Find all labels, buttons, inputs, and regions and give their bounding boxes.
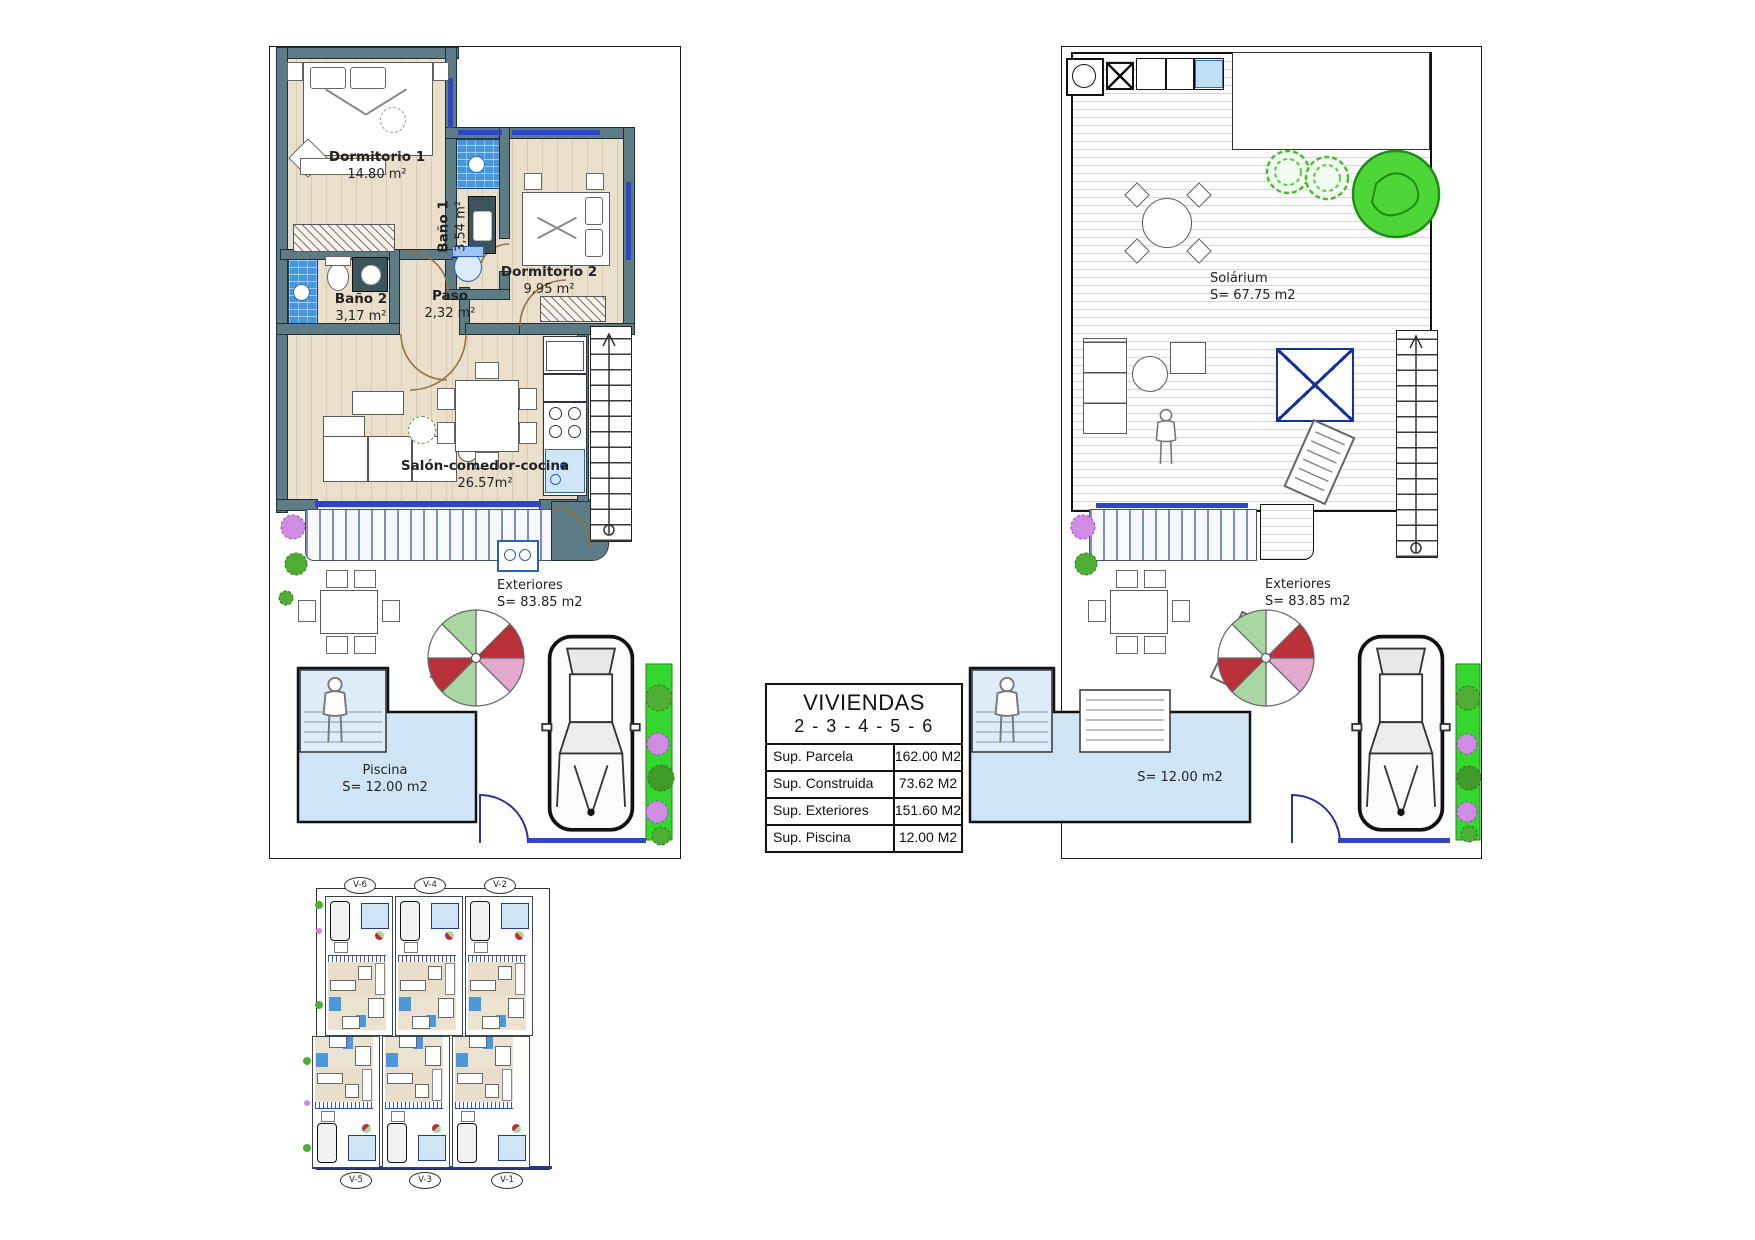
- mini-living-room: [398, 962, 456, 996]
- mini-bathroom: [456, 1053, 468, 1067]
- bush-icon: [303, 1057, 311, 1065]
- mini-dining: [498, 966, 512, 980]
- mini-bed: [412, 1016, 430, 1029]
- site-plan: V-6V-4V-2V-5V-3V-1: [0, 0, 1755, 1240]
- mini-sofa: [317, 1073, 343, 1084]
- mini-bed: [469, 1036, 487, 1048]
- bush-icon: [304, 1100, 310, 1106]
- mini-bed: [508, 998, 524, 1018]
- mini-pool: [498, 1135, 526, 1161]
- mini-car-icon: [317, 1123, 337, 1163]
- mini-living-room: [468, 962, 526, 996]
- mini-bed: [342, 1016, 360, 1029]
- bush-icon: [303, 1144, 311, 1152]
- site-unit: [452, 1036, 530, 1168]
- mini-bed: [368, 998, 384, 1018]
- mini-sofa: [457, 1073, 483, 1084]
- mini-sofa: [387, 1073, 413, 1084]
- mini-car-icon: [400, 901, 420, 941]
- mini-sofa: [470, 980, 496, 991]
- mini-table: [321, 1111, 335, 1122]
- site-unit: [465, 896, 533, 1036]
- unit-label: V-5: [340, 1172, 372, 1189]
- mini-living-room: [315, 1068, 373, 1102]
- mini-bed: [482, 1016, 500, 1029]
- mini-dining: [358, 966, 372, 980]
- mini-umbrella-icon: [362, 1124, 371, 1133]
- mini-table: [404, 942, 418, 953]
- mini-table: [474, 942, 488, 953]
- mini-dining: [415, 1084, 429, 1098]
- mini-kitchen: [362, 1069, 372, 1101]
- mini-car-icon: [387, 1123, 407, 1163]
- mini-kitchen: [375, 963, 385, 995]
- mini-car-icon: [457, 1123, 477, 1163]
- mini-bathroom: [386, 1053, 398, 1067]
- site-unit: [325, 896, 393, 1036]
- mini-bedrooms: [385, 1036, 443, 1068]
- mini-pool: [431, 903, 459, 929]
- bush-icon: [316, 928, 322, 934]
- mini-table: [334, 942, 348, 953]
- unit-label: V-6: [344, 877, 376, 894]
- floor-plan-sheet: Dormitorio 1 14.80 m² Baño 1 3,54 m² Dor…: [0, 0, 1755, 1240]
- mini-car-icon: [470, 901, 490, 941]
- mini-bedrooms: [398, 996, 456, 1030]
- mini-pool: [418, 1135, 446, 1161]
- mini-umbrella-icon: [445, 931, 454, 940]
- mini-table: [461, 1111, 475, 1122]
- mini-bed: [438, 998, 454, 1018]
- mini-bed: [329, 1036, 347, 1048]
- mini-dining: [428, 966, 442, 980]
- mini-bed: [399, 1036, 417, 1048]
- mini-umbrella-icon: [432, 1124, 441, 1133]
- mini-bed: [425, 1046, 441, 1066]
- bush-icon: [315, 1001, 323, 1009]
- mini-bathroom: [399, 997, 411, 1011]
- mini-kitchen: [515, 963, 525, 995]
- mini-sofa: [330, 980, 356, 991]
- mini-car-icon: [330, 901, 350, 941]
- mini-living-room: [385, 1068, 443, 1102]
- mini-bedrooms: [315, 1036, 373, 1068]
- mini-kitchen: [432, 1069, 442, 1101]
- mini-sofa: [400, 980, 426, 991]
- site-unit: [312, 1036, 380, 1168]
- mini-bed: [355, 1046, 371, 1066]
- mini-bedrooms: [455, 1036, 513, 1068]
- mini-porch: [315, 1101, 373, 1109]
- mini-table: [391, 1111, 405, 1122]
- mini-porch: [385, 1101, 443, 1109]
- unit-label: V-2: [484, 877, 516, 894]
- unit-label: V-1: [491, 1172, 523, 1189]
- unit-label: V-4: [414, 877, 446, 894]
- site-unit: [395, 896, 463, 1036]
- mini-umbrella-icon: [515, 931, 524, 940]
- mini-umbrella-icon: [375, 931, 384, 940]
- mini-dining: [345, 1084, 359, 1098]
- mini-living-room: [328, 962, 386, 996]
- mini-bed: [495, 1046, 511, 1066]
- mini-bedrooms: [468, 996, 526, 1030]
- site-unit: [382, 1036, 450, 1168]
- mini-porch: [455, 1101, 513, 1109]
- mini-bathroom: [316, 1053, 328, 1067]
- mini-bathroom: [469, 997, 481, 1011]
- mini-pool: [348, 1135, 376, 1161]
- mini-kitchen: [502, 1069, 512, 1101]
- mini-kitchen: [445, 963, 455, 995]
- bush-icon: [315, 901, 323, 909]
- mini-umbrella-icon: [512, 1124, 521, 1133]
- unit-label: V-3: [409, 1172, 441, 1189]
- mini-dining: [485, 1084, 499, 1098]
- mini-living-room: [455, 1068, 513, 1102]
- mini-pool: [361, 903, 389, 929]
- mini-bathroom: [329, 997, 341, 1011]
- mini-pool: [501, 903, 529, 929]
- mini-bedrooms: [328, 996, 386, 1030]
